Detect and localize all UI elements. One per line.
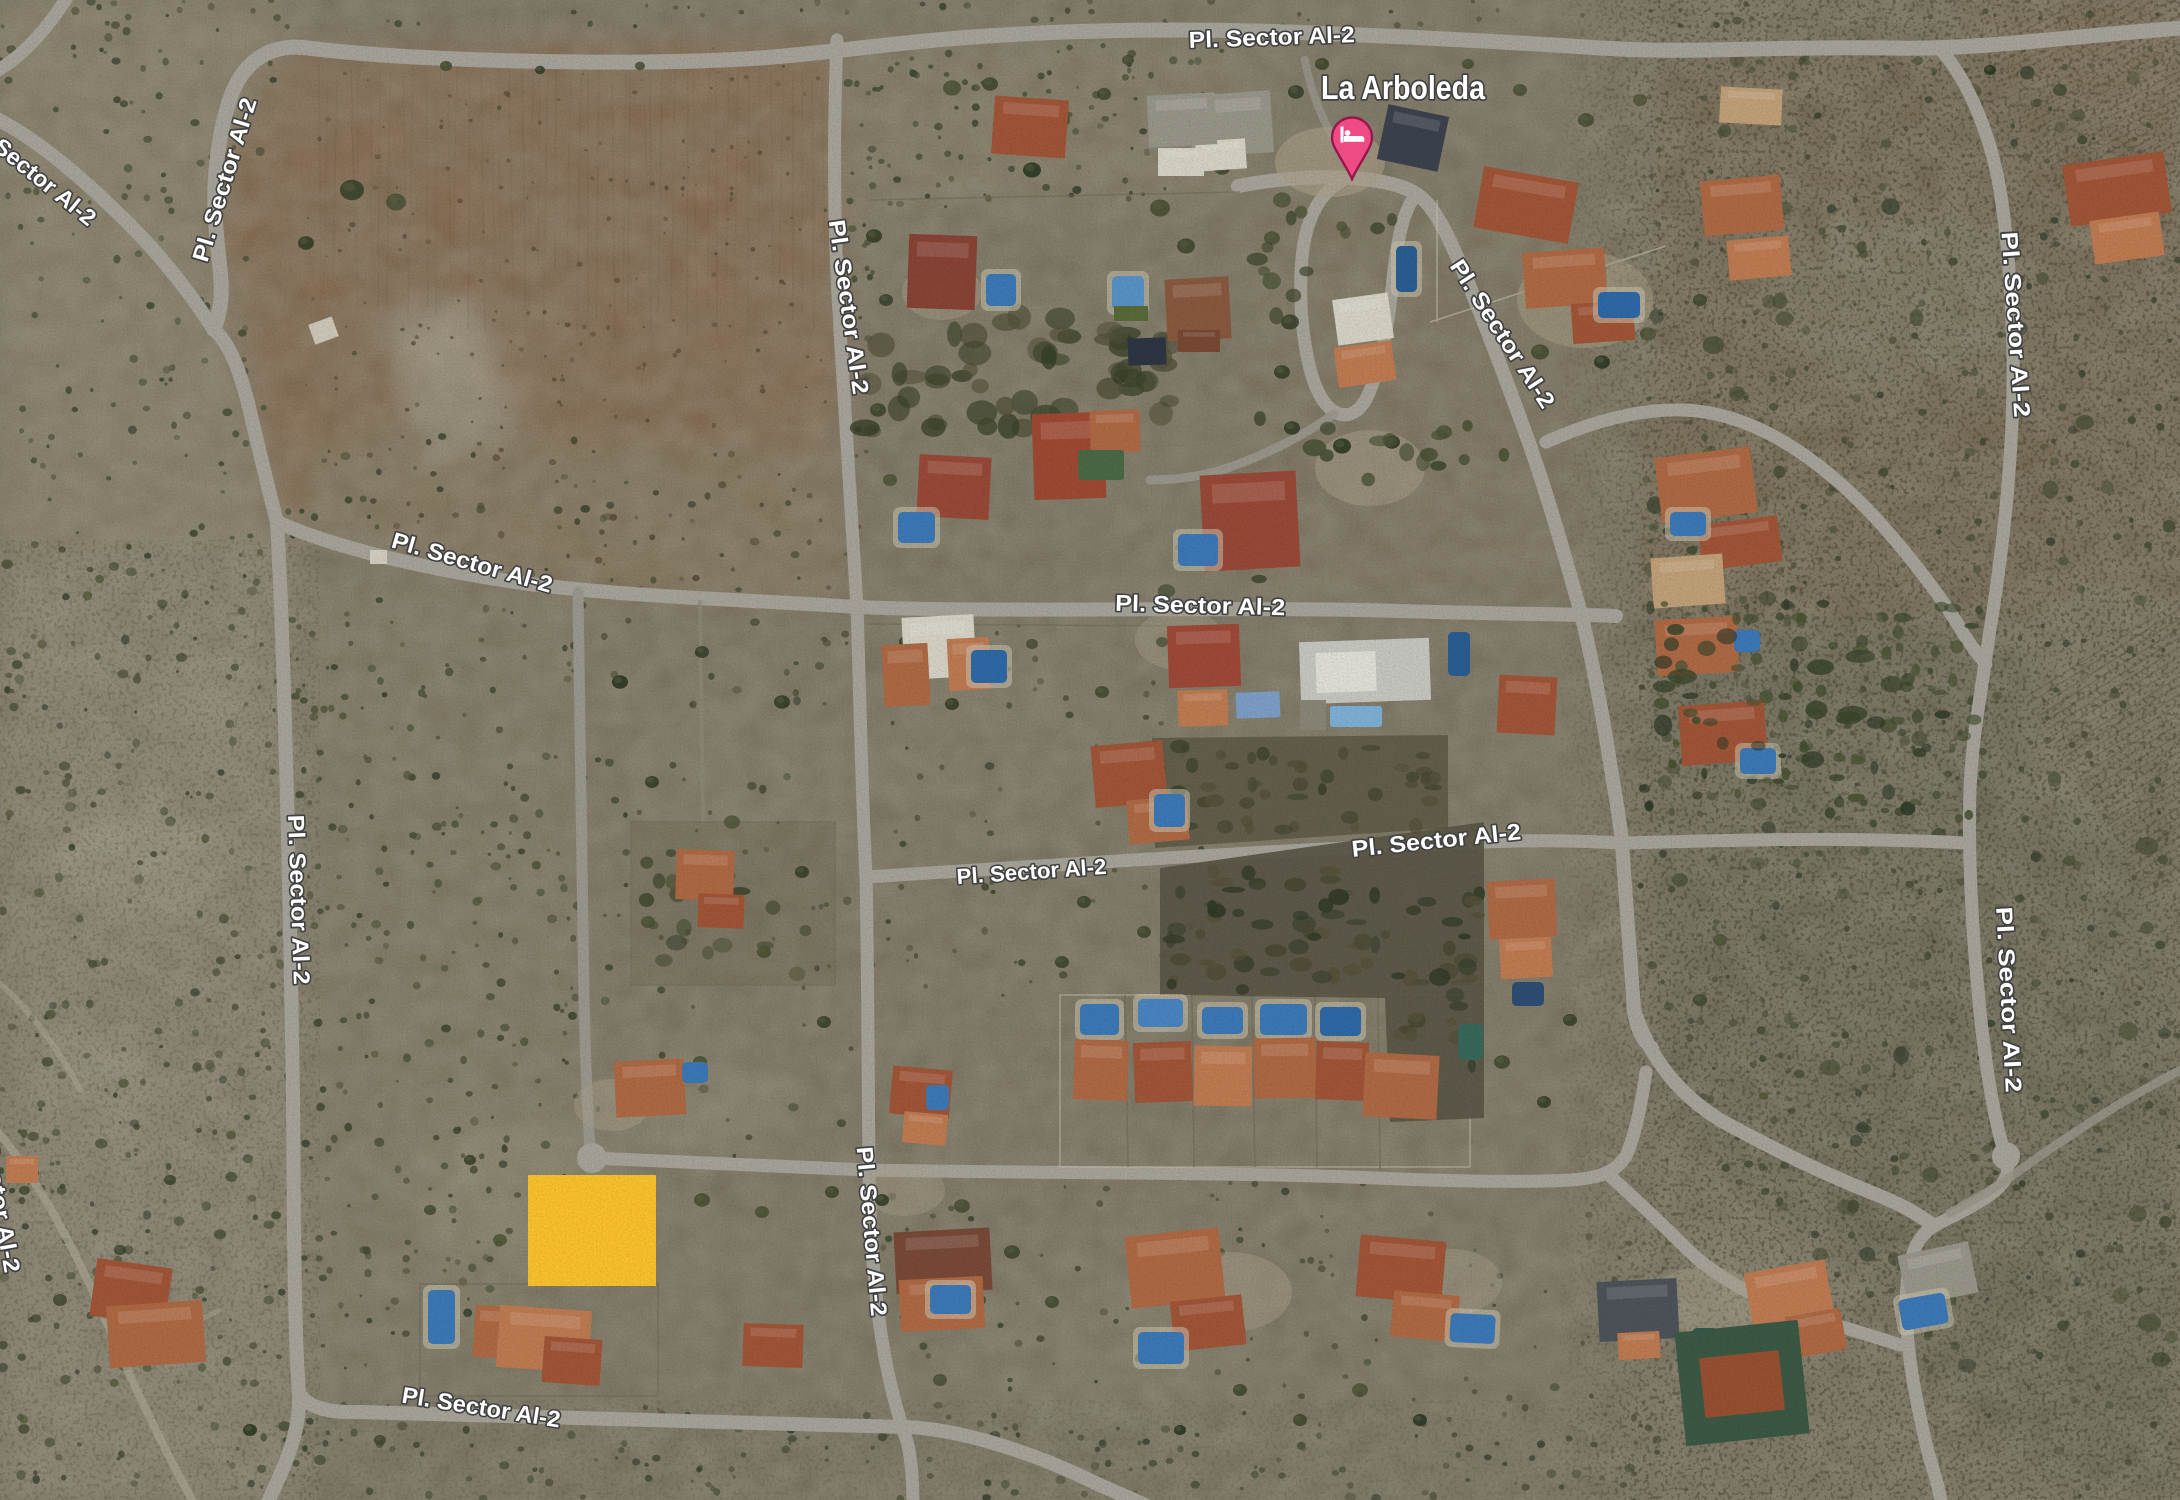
svg-text:Pl. Sector Al-2: Pl. Sector Al-2 [1115, 590, 1286, 620]
svg-text:La Arboleda: La Arboleda [1321, 69, 1486, 106]
